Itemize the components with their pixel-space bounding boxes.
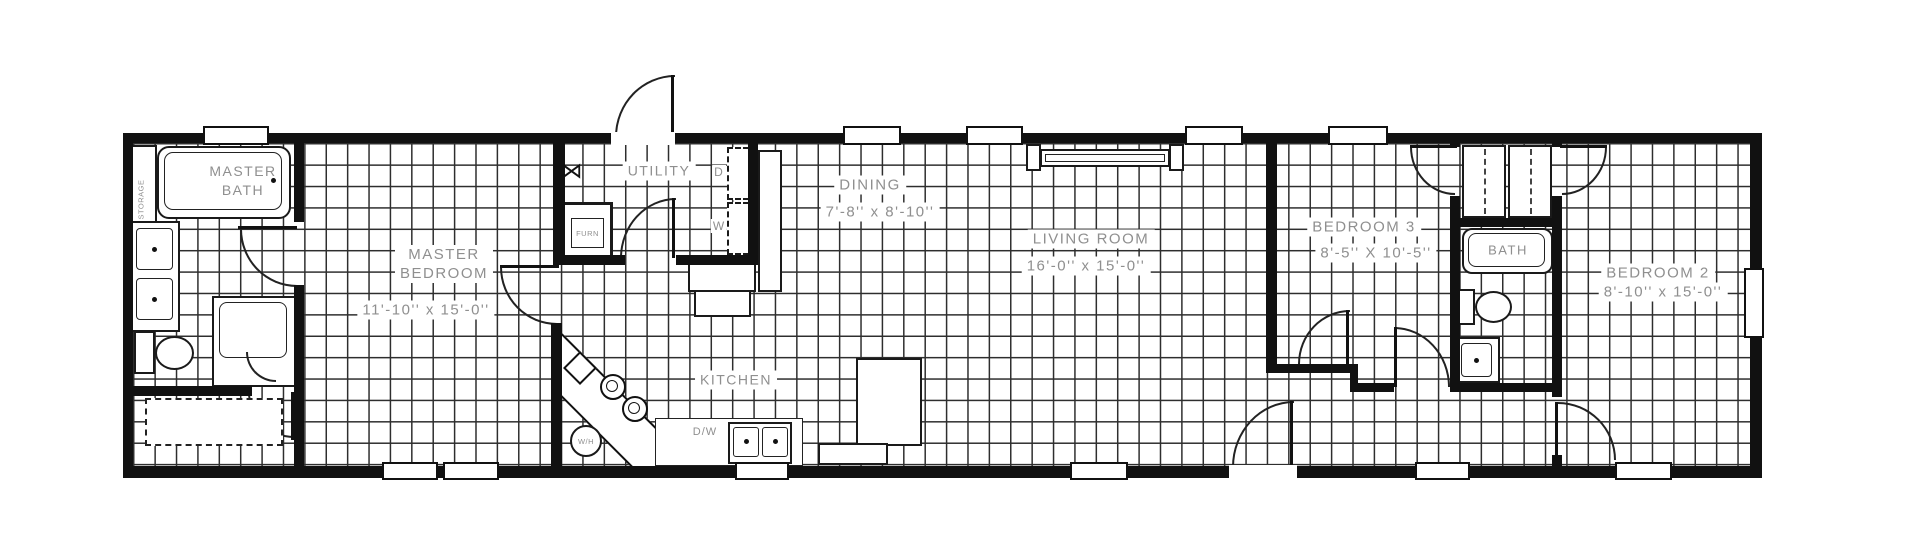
- window: [1185, 126, 1243, 145]
- sink-drain: [152, 247, 157, 252]
- furnace-label: FURN: [576, 229, 599, 238]
- wall-bedroom2-left-stub2: [1552, 455, 1562, 468]
- closet-rod: [1530, 149, 1532, 214]
- cooktop-burner: [622, 396, 648, 422]
- sink-drain: [152, 297, 157, 302]
- window: [1615, 462, 1672, 480]
- wall-utility-bottom-a: [553, 255, 625, 265]
- wall-hall-top-a: [1266, 364, 1358, 373]
- cooktop-burner: [600, 374, 626, 400]
- hutch-cabinet: [758, 150, 782, 292]
- wall-mcloset-right: [294, 390, 304, 468]
- toilet-bowl: [155, 336, 194, 370]
- room-label-master-bath: MASTER BATH: [206, 162, 279, 200]
- window: [843, 126, 901, 145]
- sink-drain: [744, 439, 749, 444]
- window: [203, 126, 269, 145]
- vanity-double-sink: [130, 221, 180, 332]
- walk-in-closet-shelving: [145, 398, 283, 446]
- wall-kitchen-left: [551, 323, 562, 468]
- room-dims-living-room: 16'-0'' x 15'-0'': [1022, 257, 1151, 276]
- back-door-opening: [611, 132, 675, 145]
- wall-utility-bottom-b: [676, 255, 758, 265]
- back-door-leaf: [671, 75, 674, 137]
- toilet-tank: [134, 331, 155, 374]
- room-dims-dining: 7'-8'' x 8'-10'': [821, 203, 940, 222]
- shower-pan: [219, 302, 287, 358]
- room-label-dining: DINING: [834, 176, 906, 195]
- toilet-bowl: [1475, 291, 1512, 323]
- wall-bedroom2-left: [1552, 196, 1562, 397]
- wall-bathcol-left-stub: [1450, 133, 1460, 147]
- bar-counter: [818, 443, 888, 465]
- outer-wall-left: [123, 133, 133, 478]
- master-bedroom-door-leaf: [500, 265, 559, 268]
- window-seat-cap: [1169, 144, 1184, 171]
- bedroom2-closet-door-leaf: [1560, 145, 1607, 148]
- water-heater-label: W/H: [578, 437, 594, 446]
- wall-mcloset-top: [131, 386, 252, 396]
- toilet-tank: [1458, 289, 1475, 325]
- window-seat-band-inner: [1045, 154, 1165, 162]
- window-seat-band: [1040, 149, 1170, 167]
- furnace-closet: FURN: [557, 202, 613, 261]
- wall-bedroom2-left-stub: [1552, 133, 1562, 147]
- room-label-bedroom-2: BEDROOM 2: [1601, 264, 1715, 283]
- bedroom3-door-leaf: [1346, 310, 1349, 364]
- bath-door-leaf: [1394, 327, 1397, 387]
- room-dims-bedroom-2: 8'-10'' x 15'-0'': [1599, 283, 1728, 302]
- front-door-leaf: [1290, 401, 1293, 467]
- closet-rod: [1484, 149, 1486, 214]
- window: [443, 462, 499, 480]
- wall-bath-bottom: [1450, 383, 1558, 392]
- closet-wardrobe: [1508, 145, 1552, 218]
- window: [1744, 268, 1764, 338]
- utility-door-leaf: [672, 198, 675, 258]
- room-label-living-room: LIVING ROOM: [1028, 230, 1155, 249]
- wall-utility-right: [748, 133, 758, 265]
- refrigerator: [688, 262, 756, 292]
- window: [966, 126, 1023, 145]
- dishwasher-label: D/W: [691, 426, 719, 438]
- room-label-bath: BATH: [1483, 241, 1533, 260]
- bedroom2-door-leaf: [1555, 402, 1558, 460]
- pantry-cabinet: [856, 358, 922, 446]
- outer-wall-top: [123, 133, 1762, 143]
- kitchen-sink: [728, 422, 792, 464]
- storage-label: STORAGE: [137, 179, 146, 219]
- back-door-arc: [615, 75, 675, 137]
- room-label-utility: UTILITY: [623, 162, 696, 181]
- master-bath-door-leaf: [238, 226, 297, 229]
- dryer-label: D: [712, 165, 726, 179]
- refrigerator-door: [694, 290, 751, 317]
- front-door-opening: [1229, 465, 1297, 479]
- wall-hall-top-b: [1350, 383, 1394, 392]
- washer-label: W: [711, 219, 727, 233]
- wall-mbath-top: [294, 133, 304, 222]
- wall-closets-bottom: [1450, 218, 1562, 227]
- window: [1415, 462, 1470, 480]
- window: [1328, 126, 1388, 145]
- room-label-master-bedroom: MASTER BEDROOM: [395, 245, 493, 283]
- wall-utility-left: [553, 133, 565, 263]
- wall-mbath-mid: [294, 285, 304, 393]
- room-dims-master-bedroom: 11'-10'' x 15'-0'': [357, 301, 494, 320]
- room-dims-bedroom-3: 8'-5'' X 10'-5'': [1315, 244, 1436, 263]
- sink-drain: [773, 439, 778, 444]
- sink-drain: [1474, 358, 1479, 363]
- vanity-sink: [1455, 337, 1500, 383]
- wall-bedroom3-left: [1266, 133, 1277, 373]
- window-seat-cap: [1026, 144, 1041, 171]
- floor-plan: STORAGE ⋈ FURN D W W/H D/W: [0, 0, 1920, 545]
- window: [382, 462, 438, 480]
- room-label-bedroom-3: BEDROOM 3: [1307, 218, 1421, 237]
- room-label-kitchen: KITCHEN: [695, 371, 777, 390]
- closet-wardrobe: [1462, 145, 1506, 218]
- window: [735, 462, 789, 480]
- window: [1070, 462, 1128, 480]
- water-heater: W/H: [570, 425, 602, 457]
- outer-wall-bottom: [123, 466, 1762, 478]
- furnace: FURN: [571, 218, 604, 248]
